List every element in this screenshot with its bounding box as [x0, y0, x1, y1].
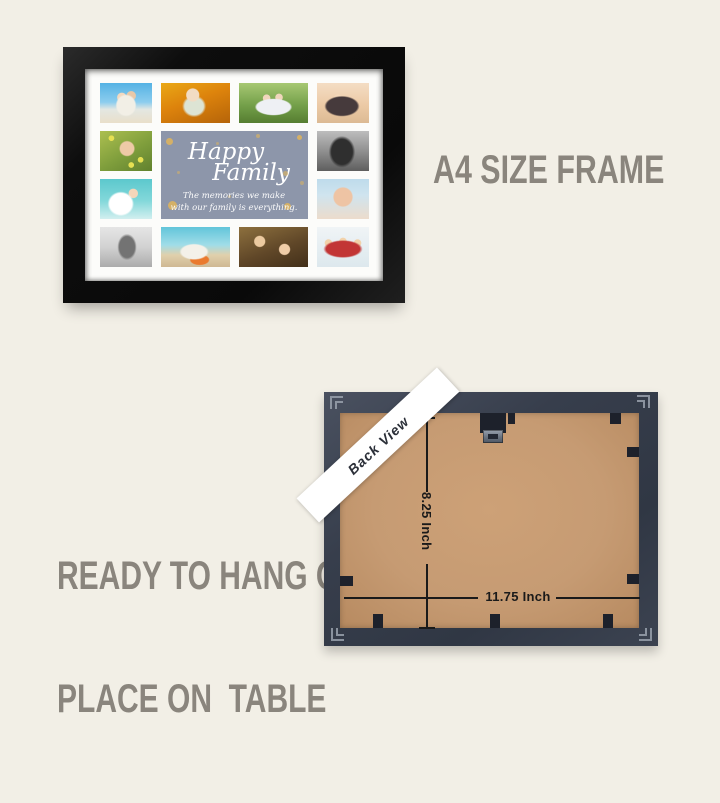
collage-photo-bw-field-couple [100, 227, 152, 267]
back-view-frame: 8.25 Inch 11.75 Inch Back View [324, 392, 658, 646]
height-dimension-tick [419, 627, 435, 629]
height-dimension-line [426, 418, 428, 492]
corner-bracket-icon [637, 395, 650, 408]
hang-caption: READY TO HANG OR PLACE ON TABLE [57, 474, 361, 802]
panel-subtitle: The memories we make with our family is … [161, 190, 308, 215]
retainer-clip-icon [610, 413, 621, 424]
retainer-clip-icon [627, 447, 639, 457]
collage-photo-beach-couple [100, 83, 152, 123]
hang-caption-line1: READY TO HANG OR [57, 556, 361, 597]
collage-photo-beach-pillow-couple [161, 227, 230, 267]
collage-photo-autumn-toddler [161, 83, 230, 123]
retainer-clip-icon [340, 576, 353, 586]
collage-photo-bw-kissing-couple [317, 131, 369, 171]
retainer-clip-icon [490, 614, 500, 628]
collage-photo-flower-girl [100, 131, 152, 171]
height-dimension-line [426, 564, 428, 628]
collage-photo-park-family [239, 83, 308, 123]
collage-photo-mom-and-baby [100, 179, 152, 219]
collage-photo-red-pajama-family [317, 227, 369, 267]
corner-bracket-icon [639, 628, 652, 641]
decor-dot [283, 171, 288, 176]
corner-bracket-icon [331, 628, 344, 641]
retainer-clip-icon [627, 574, 639, 584]
width-dimension-line [556, 597, 640, 599]
decor-dot [256, 134, 260, 138]
happy-family-panel: Happy Family The memories we make with o… [161, 131, 308, 219]
size-caption: A4 SIZE FRAME [433, 150, 664, 190]
height-dimension-label: 8.25 Inch [419, 492, 434, 550]
width-dimension-line [344, 597, 478, 599]
retainer-clip-icon [373, 614, 383, 628]
collage-photo-autumn-kids [239, 227, 308, 267]
front-frame: Happy Family The memories we make with o… [63, 47, 405, 303]
hang-caption-line2: PLACE ON TABLE [57, 679, 361, 720]
frame-mat: Happy Family The memories we make with o… [85, 69, 383, 281]
retainer-clip-icon [508, 413, 515, 424]
retainer-clip-icon [603, 614, 613, 628]
width-dimension-label: 11.75 Inch [478, 589, 558, 604]
photo-collage-grid: Happy Family The memories we make with o… [100, 83, 369, 267]
collage-photo-beach-family-sunset [317, 83, 369, 123]
hanging-hook-metal-icon [483, 430, 503, 443]
corner-bracket-icon [330, 396, 343, 409]
collage-photo-thinking-baby [317, 179, 369, 219]
